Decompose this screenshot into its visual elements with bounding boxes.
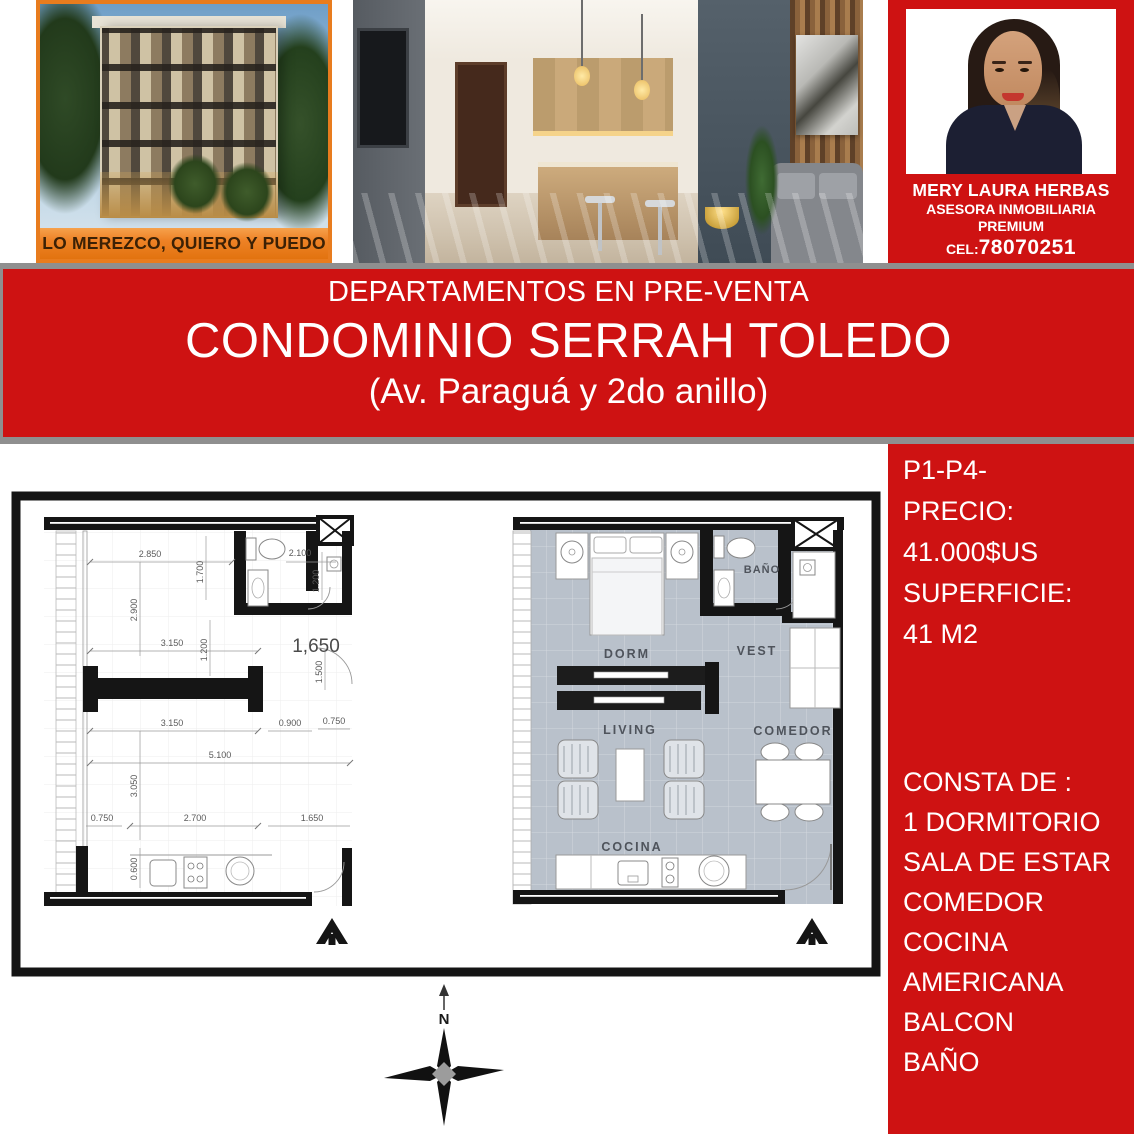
face-art [1002,93,1024,101]
dim-label: 1.650 [301,813,324,823]
title-banner: DEPARTAMENTOS EN PRE-VENTA CONDOMINIO SE… [0,263,1134,444]
face-art [1018,61,1032,64]
dim-label: 3.150 [161,638,184,648]
kitchen-fixtures [556,855,746,889]
room-label: DORM [604,647,650,661]
banner-subtitle: DEPARTAMENTOS EN PRE-VENTA [3,276,1134,309]
door-art [455,62,507,207]
dim-label: 0.750 [323,716,346,726]
face-art [1020,68,1029,72]
sidebar-line: BALCON [903,1002,1111,1042]
tv-art [357,28,409,148]
price-block: P1-P4- PRECIO: 41.000$US SUPERFICIE: 41 … [903,450,1073,655]
agent-photo [906,9,1116,174]
agent-tier: PREMIUM [888,218,1134,234]
dim-label: 0.750 [91,813,114,823]
kitchen-cabinet-art [533,58,673,136]
dim-label: 1.200 [199,639,209,662]
left-floor-plan: 2.850 1.700 2.900 2.100 1.200 3.150 1.20… [44,517,353,945]
compass-north-label: N [439,1011,450,1028]
dim-label: 2.850 [139,549,162,559]
room-label: BAÑO [744,563,780,576]
palm-art [220,162,274,222]
room-label: COCINA [601,840,662,854]
dim-label: 2.900 [129,599,139,622]
compass-rose: N [384,984,504,1126]
abstract-painting-art [796,35,858,135]
sidebar-line: COMEDOR [903,882,1111,922]
interior-photo [353,0,863,263]
closet [790,628,840,708]
dim-label: 1.700 [195,561,205,584]
sidebar-line: P1-P4- [903,450,1073,491]
flyer-page: LO MEREZCO, QUIERO Y PUEDO [0,0,1134,1134]
dim-label: 2.700 [184,813,207,823]
banner-address: (Av. Paraguá y 2do anillo) [3,372,1134,412]
building-caption-text: LO MEREZCO, QUIERO Y PUEDO [42,233,326,254]
dim-label: 5.100 [209,750,232,760]
room-label: COMEDOR [753,724,832,738]
sidebar-line: 41 M2 [903,614,1073,655]
phone-label: CEL: [946,241,979,257]
agent-name: MERY LAURA HERBAS [888,180,1134,201]
balcony [513,531,531,904]
dim-label: 3.150 [161,718,184,728]
sidebar-line: CONSTA DE : [903,762,1111,802]
sidebar-line: SUPERFICIE: [903,573,1073,614]
pendant-lamp-art [641,14,643,84]
building-caption: LO MEREZCO, QUIERO Y PUEDO [40,228,328,259]
dim-label: 2.100 [289,548,312,558]
floor-reflection-art [353,193,863,263]
right-floor-plan: BAÑO DORM VEST LIVING COMEDOR COCINA [513,517,844,945]
sidebar-line: SALA DE ESTAR [903,842,1111,882]
dim-label: 0.900 [279,718,302,728]
face-art [995,68,1004,72]
palm-art [168,154,222,214]
sidebar-line: PRECIO: [903,491,1073,532]
sidebar-line: 1 DORMITORIO [903,802,1111,842]
dim-label: 1.200 [311,570,321,593]
room-label: LIVING [603,723,657,737]
dim-label: 1.500 [314,661,324,684]
blazer-art [1004,105,1026,131]
face-art [992,61,1006,64]
dim-label-large: 1,650 [292,636,340,657]
balcony [56,531,76,905]
floor-plan-figure: 2.850 1.700 2.900 2.100 1.200 3.150 1.20… [0,444,890,1134]
agent-role: ASESORA INMOBILIARIA [888,201,1134,217]
room-label: VEST [737,644,778,658]
sidebar-line: BAÑO [903,1042,1111,1082]
sidebar-line: AMERICANA [903,962,1111,1002]
sidebar-line: COCINA [903,922,1111,962]
agent-phone: CEL:78070251 [888,236,1134,260]
pendant-lamp-art [581,0,583,70]
dim-label: 3.050 [129,775,139,798]
sidebar-line: 41.000$US [903,532,1073,573]
dim-label: 0.600 [129,858,139,881]
info-sidebar: P1-P4- PRECIO: 41.000$US SUPERFICIE: 41 … [888,444,1134,1134]
phone-number: 78070251 [979,236,1076,259]
banner-title: CONDOMINIO SERRAH TOLEDO [3,313,1134,369]
features-block: CONSTA DE : 1 DORMITORIO SALA DE ESTAR C… [903,762,1111,1082]
building-photo-card: LO MEREZCO, QUIERO Y PUEDO [36,0,332,263]
agent-card: MERY LAURA HERBAS ASESORA INMOBILIARIA P… [888,0,1134,263]
